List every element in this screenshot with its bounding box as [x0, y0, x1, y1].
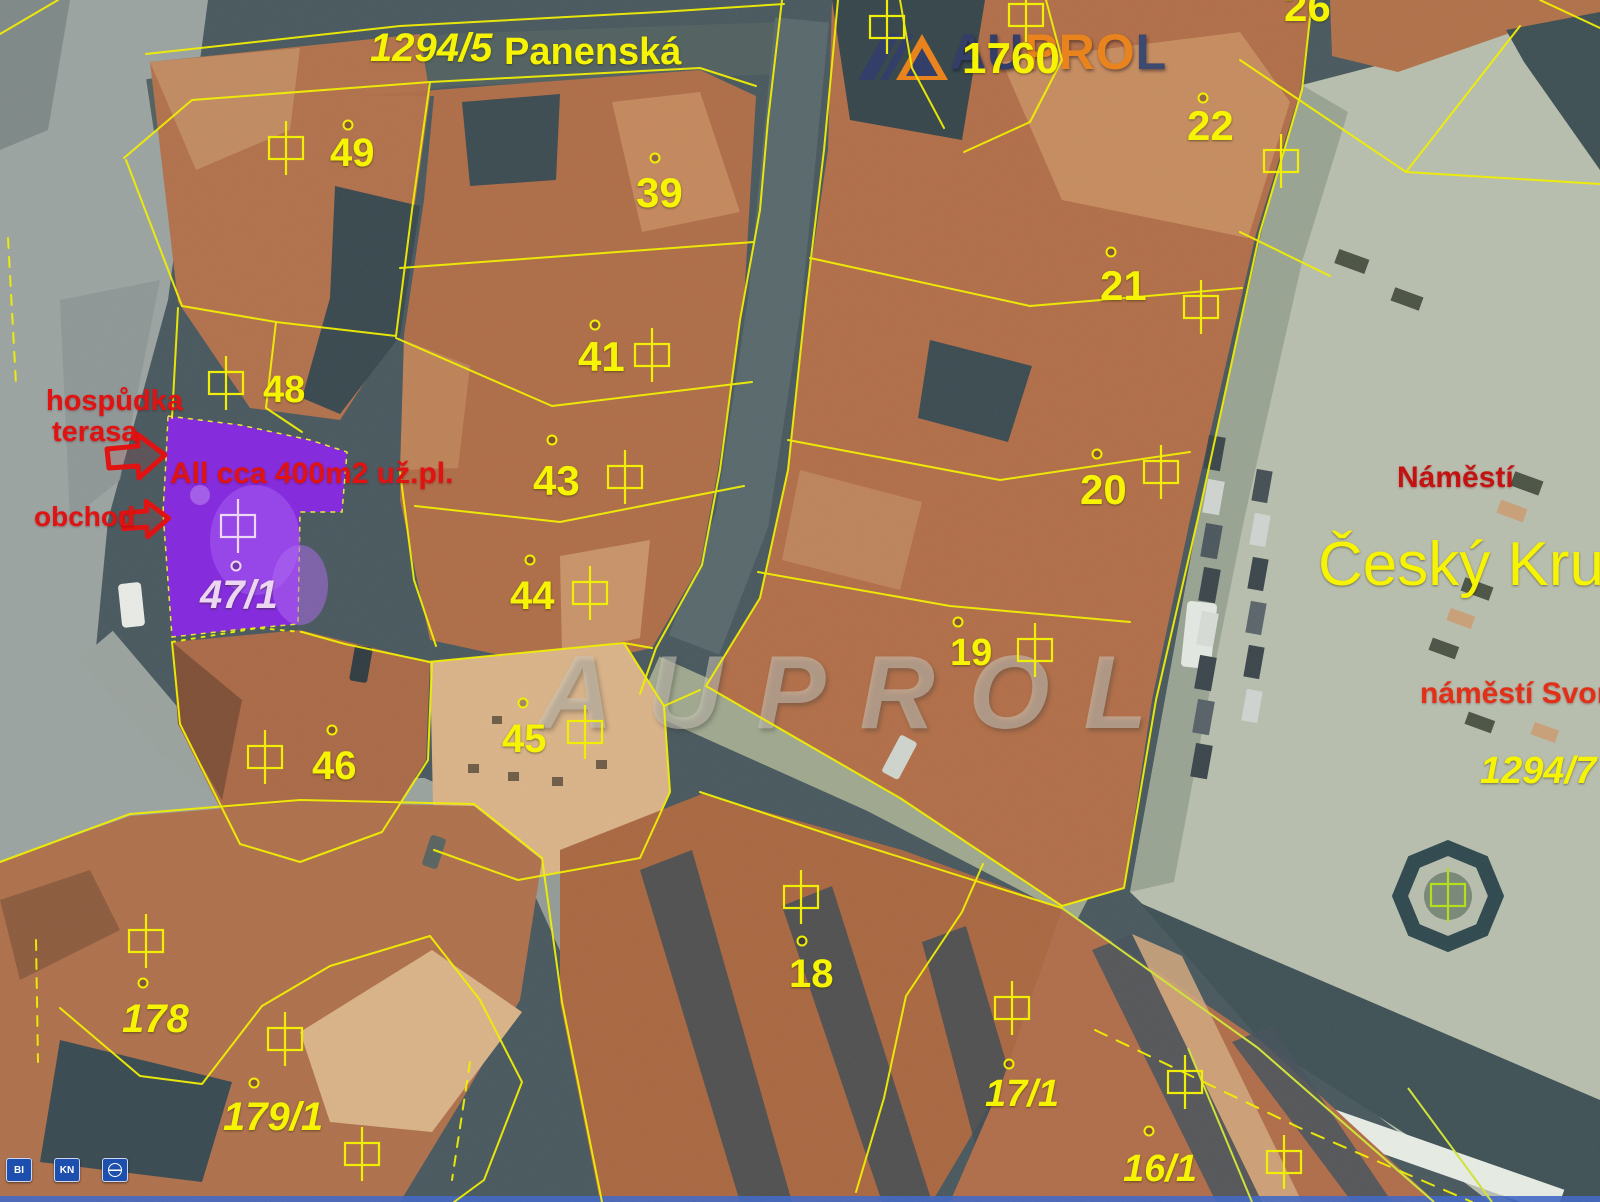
point-marker-icon	[526, 556, 535, 565]
building-symbol	[1431, 868, 1465, 922]
annotation-obchod: obchod	[34, 502, 135, 531]
point-marker-icon	[548, 436, 557, 445]
building-symbol	[608, 450, 642, 504]
building-symbol	[1267, 1135, 1301, 1189]
layer-button-kn[interactable]: KN	[54, 1158, 80, 1182]
building-symbol	[269, 121, 303, 175]
building-symbol	[573, 566, 607, 620]
point-marker-icon	[798, 937, 807, 946]
parcel-label-49: 49	[330, 133, 375, 173]
annotation-n-m-st-svorn: náměstí Svorn	[1420, 678, 1600, 710]
annotation-terasa: terasa	[52, 417, 137, 447]
parcel-label-178: 178	[122, 999, 189, 1039]
point-marker-icon	[1145, 1127, 1154, 1136]
parcel-label-179-1: 179/1	[223, 1097, 323, 1137]
parcel-label-43: 43	[533, 460, 580, 502]
parcel-label-46: 46	[312, 746, 357, 786]
parcel-label-17-1: 17/1	[985, 1075, 1059, 1113]
globe-icon	[108, 1163, 122, 1177]
parcel-label-22: 22	[1187, 105, 1234, 147]
parcel-label-1760: 1760	[962, 37, 1060, 81]
annotation-hosp-dka: hospůdka	[46, 386, 183, 416]
building-symbol	[1018, 623, 1052, 677]
parcel-label-47-1: 47/1	[200, 575, 278, 615]
parcel-label-esk-krum: Český Krum	[1318, 534, 1600, 596]
layer-button-bi[interactable]: BI	[6, 1158, 32, 1182]
corner-buttons: BIKN	[6, 1158, 128, 1182]
annotation-n-m-st: Náměstí	[1397, 462, 1514, 494]
point-marker-icon	[1093, 450, 1102, 459]
building-symbol	[1144, 445, 1178, 499]
parcel-label-41: 41	[578, 336, 625, 378]
building-symbol	[870, 0, 904, 54]
point-marker-icon	[1005, 1060, 1014, 1069]
point-marker-icon	[250, 1079, 259, 1088]
point-marker-icon	[519, 699, 528, 708]
point-marker-icon	[328, 726, 337, 735]
parcel-label-44: 44	[510, 576, 555, 616]
building-symbol	[345, 1127, 379, 1181]
building-symbol	[209, 356, 243, 410]
parcel-label-20: 20	[1080, 469, 1127, 511]
point-marker-icon	[1107, 248, 1116, 257]
point-marker-icon	[591, 321, 600, 330]
parcel-label-16-1: 16/1	[1123, 1150, 1197, 1188]
point-marker-icon	[232, 562, 241, 571]
parcel-label-19: 19	[950, 634, 992, 672]
parcel-label-21: 21	[1100, 265, 1147, 307]
building-symbols-group	[129, 0, 1465, 1189]
parcel-label-45: 45	[502, 719, 547, 759]
point-marker-icon	[651, 154, 660, 163]
point-marker-icon	[139, 979, 148, 988]
parcel-label-26: 26	[1284, 0, 1331, 28]
building-symbol	[1264, 134, 1298, 188]
point-marker-icon	[344, 121, 353, 130]
building-symbol	[995, 981, 1029, 1035]
layer-button-globe[interactable]	[102, 1158, 128, 1182]
parcel-label-1294-5: 1294/5	[370, 28, 492, 68]
parcel-label-18: 18	[789, 954, 834, 994]
parcel-label-48: 48	[263, 371, 305, 409]
building-symbol	[784, 870, 818, 924]
parcel-label-39: 39	[636, 172, 683, 214]
building-symbol	[248, 730, 282, 784]
parcel-label-1294-7: 1294/7	[1480, 752, 1596, 790]
point-marker-icon	[954, 618, 963, 627]
building-symbol	[635, 328, 669, 382]
building-symbol	[568, 705, 602, 759]
building-symbol	[1168, 1055, 1202, 1109]
building-symbol	[1184, 280, 1218, 334]
parcel-label-panensk: Panenská	[504, 33, 681, 71]
building-symbol	[268, 1012, 302, 1066]
building-symbol	[129, 914, 163, 968]
map-stage: AUPROL AUPROL	[0, 0, 1600, 1202]
annotation-all-cca-400m2-u-pl: All cca 400m2 už.pl.	[170, 458, 453, 490]
